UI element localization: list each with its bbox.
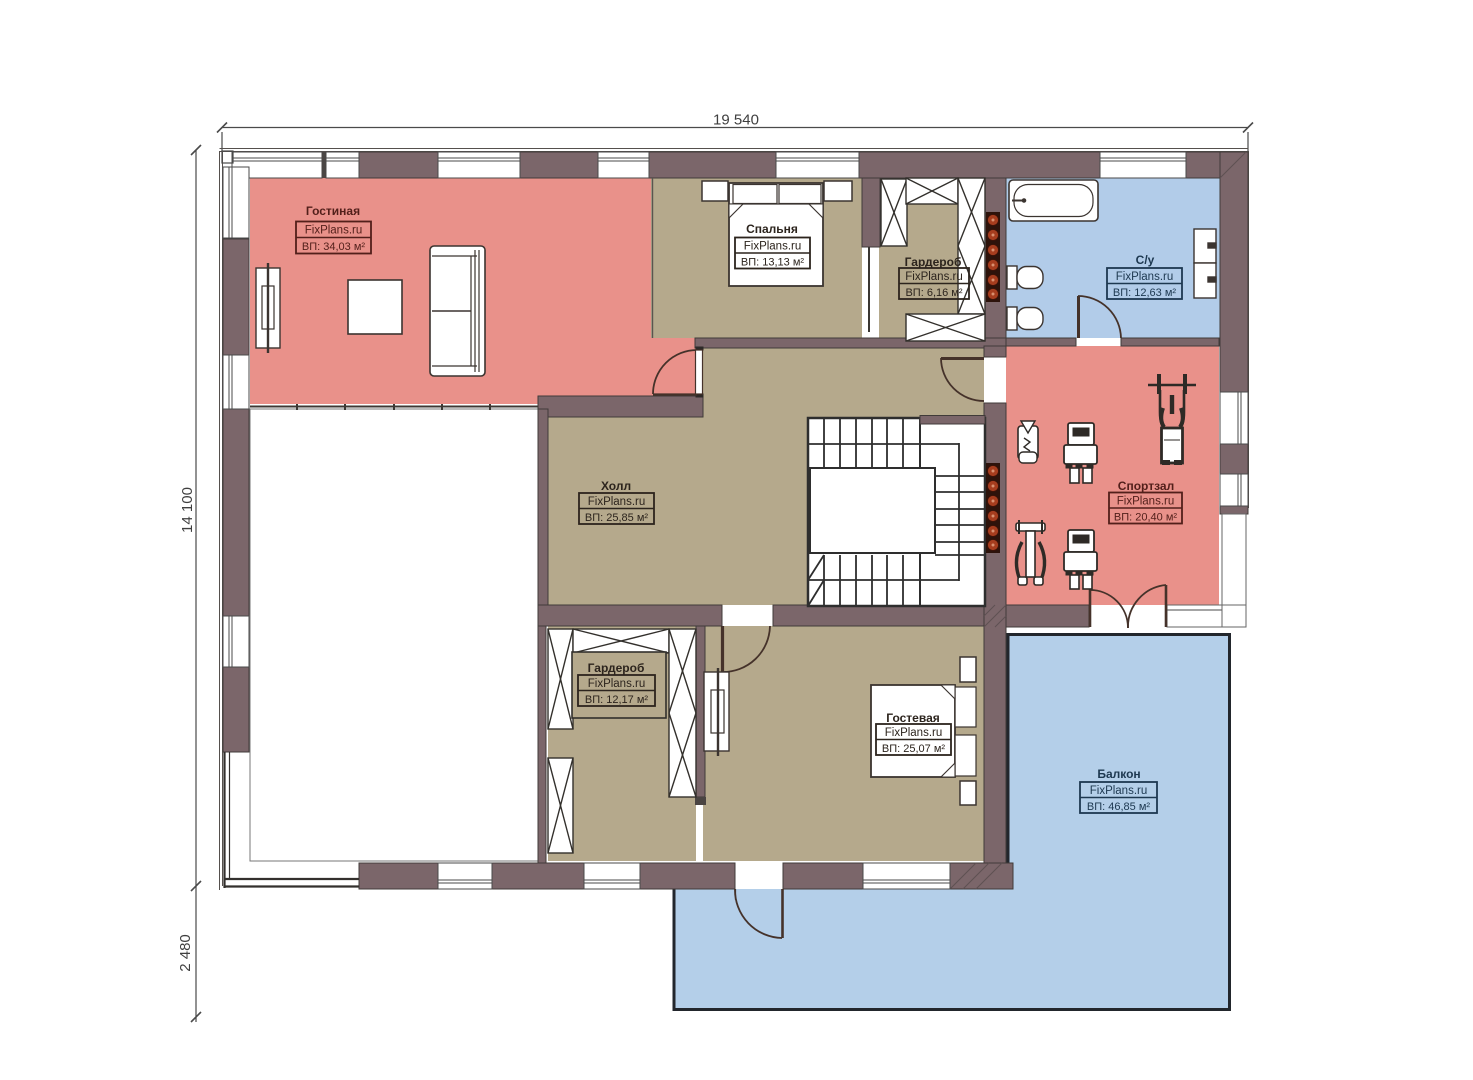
svg-text:ВП: 25,85 м²: ВП: 25,85 м²: [585, 512, 649, 524]
svg-text:Спортзал: Спортзал: [1118, 479, 1174, 493]
svg-text:FixPlans.ru: FixPlans.ru: [1117, 496, 1175, 508]
svg-text:2 480: 2 480: [177, 934, 194, 972]
svg-text:19 540: 19 540: [713, 112, 759, 129]
svg-text:Холл: Холл: [601, 479, 631, 493]
svg-text:Гостиная: Гостиная: [306, 204, 360, 218]
svg-text:ВП: 25,07 м²: ВП: 25,07 м²: [882, 743, 946, 755]
svg-text:FixPlans.ru: FixPlans.ru: [305, 225, 363, 237]
svg-text:ВП: 13,13 м²: ВП: 13,13 м²: [741, 257, 805, 269]
svg-text:ВП: 46,85 м²: ВП: 46,85 м²: [1087, 801, 1151, 813]
svg-text:Спальня: Спальня: [746, 222, 798, 236]
svg-text:Гардероб: Гардероб: [588, 661, 645, 675]
svg-text:ВП: 34,03 м²: ВП: 34,03 м²: [302, 241, 366, 253]
svg-text:С/у: С/у: [1136, 253, 1155, 267]
svg-text:FixPlans.ru: FixPlans.ru: [588, 496, 646, 508]
svg-text:ВП: 12,17 м²: ВП: 12,17 м²: [585, 694, 649, 706]
svg-text:FixPlans.ru: FixPlans.ru: [744, 241, 802, 253]
svg-text:FixPlans.ru: FixPlans.ru: [905, 271, 963, 283]
svg-text:Гостевая: Гостевая: [886, 711, 940, 725]
svg-text:ВП: 20,40 м²: ВП: 20,40 м²: [1114, 512, 1178, 524]
svg-text:Балкон: Балкон: [1097, 767, 1140, 781]
svg-text:ВП: 12,63 м²: ВП: 12,63 м²: [1113, 287, 1177, 299]
svg-text:FixPlans.ru: FixPlans.ru: [588, 678, 646, 690]
svg-text:14 100: 14 100: [179, 487, 196, 533]
svg-text:ВП: 6,16 м²: ВП: 6,16 м²: [905, 287, 962, 299]
svg-text:FixPlans.ru: FixPlans.ru: [885, 727, 943, 739]
svg-text:Гардероб: Гардероб: [905, 255, 962, 269]
svg-text:FixPlans.ru: FixPlans.ru: [1116, 271, 1174, 283]
svg-text:FixPlans.ru: FixPlans.ru: [1090, 785, 1148, 797]
